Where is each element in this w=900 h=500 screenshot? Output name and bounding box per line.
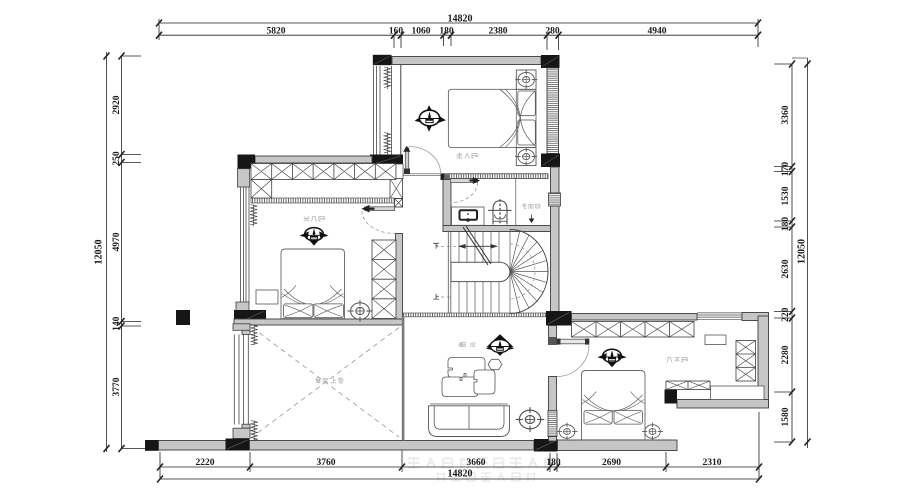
svg-text:180: 180	[781, 217, 791, 232]
svg-text:1530: 1530	[781, 186, 791, 205]
svg-text:12050: 12050	[797, 239, 808, 264]
svg-text:2280: 2280	[781, 345, 791, 364]
svg-text:2920: 2920	[112, 95, 122, 114]
svg-text:3760: 3760	[317, 458, 336, 468]
svg-text:14820: 14820	[448, 14, 473, 25]
svg-text:12050: 12050	[94, 240, 105, 265]
svg-text:2220: 2220	[196, 458, 215, 468]
svg-text:280: 280	[545, 27, 560, 37]
svg-text:2310: 2310	[703, 458, 722, 468]
svg-text:3660: 3660	[467, 458, 486, 468]
svg-text:170: 170	[781, 162, 791, 177]
svg-text:4970: 4970	[112, 232, 122, 251]
svg-text:4940: 4940	[648, 27, 667, 37]
svg-text:140: 140	[112, 316, 122, 331]
svg-text:5820: 5820	[267, 27, 286, 37]
svg-text:2690: 2690	[602, 458, 621, 468]
svg-text:1060: 1060	[412, 27, 431, 37]
svg-text:3770: 3770	[112, 377, 122, 396]
svg-text:160: 160	[389, 27, 404, 37]
svg-text:2380: 2380	[489, 27, 508, 37]
svg-text:180: 180	[439, 27, 454, 37]
svg-text:180: 180	[546, 458, 561, 468]
svg-text:220: 220	[781, 307, 791, 322]
svg-text:2630: 2630	[781, 259, 791, 278]
svg-text:250: 250	[112, 151, 122, 166]
svg-text:1580: 1580	[781, 407, 791, 426]
svg-text:3360: 3360	[781, 105, 791, 124]
svg-text:14820: 14820	[448, 469, 473, 480]
